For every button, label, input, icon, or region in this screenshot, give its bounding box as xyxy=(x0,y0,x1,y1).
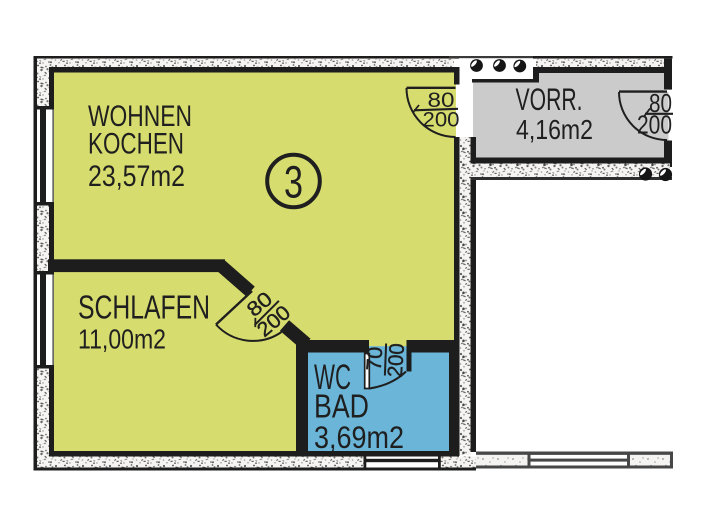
svg-text:200: 200 xyxy=(384,343,409,379)
svg-text:3,69m2: 3,69m2 xyxy=(314,419,404,455)
svg-text:11,00m2: 11,00m2 xyxy=(78,324,166,355)
svg-text:4,16m2: 4,16m2 xyxy=(516,114,593,145)
svg-text:23,57m2: 23,57m2 xyxy=(88,160,185,193)
svg-text:200: 200 xyxy=(423,109,460,132)
svg-text:VORR.: VORR. xyxy=(516,81,583,117)
svg-text:SCHLAFEN: SCHLAFEN xyxy=(78,289,210,326)
svg-text:3: 3 xyxy=(284,157,303,208)
svg-text:200: 200 xyxy=(637,110,672,140)
svg-text:KOCHEN: KOCHEN xyxy=(88,128,184,161)
